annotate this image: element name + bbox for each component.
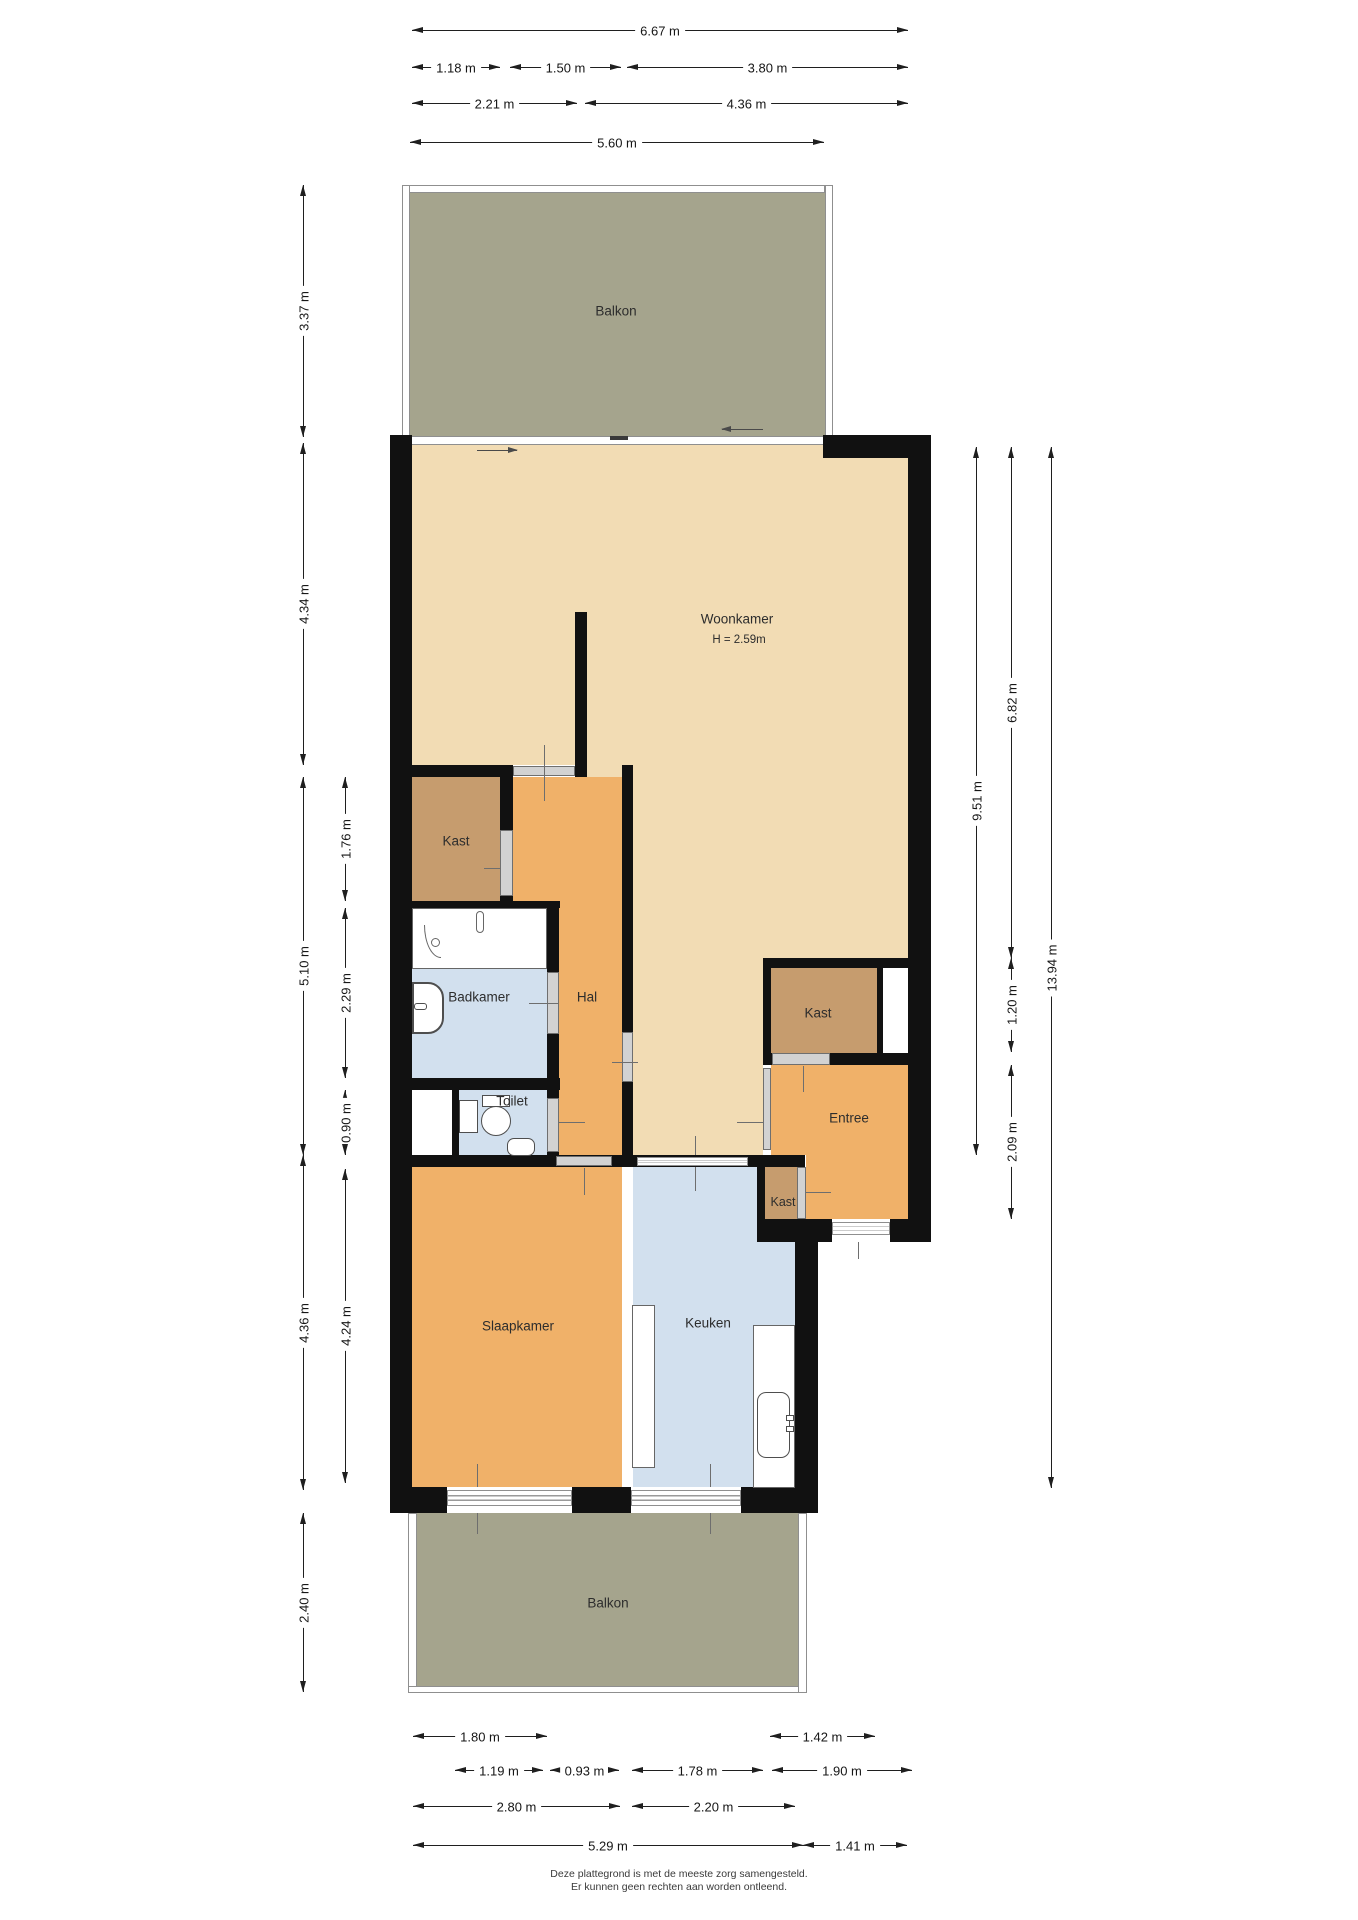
balcony-rail-right (825, 185, 833, 437)
dimension: 2.09 m (1011, 1065, 1012, 1219)
wall-bad-bottom (410, 1078, 560, 1090)
door-swing-tick (544, 745, 545, 801)
dimension: 4.34 m (303, 443, 304, 765)
room-woonkamer-right (633, 765, 908, 958)
balcony2-rail-left (408, 1513, 417, 1693)
dimension-label: 1.78 m (673, 1764, 723, 1779)
dimension: 1.76 m (345, 777, 346, 901)
dimension: 4.36 m (585, 103, 908, 104)
dimension-label: 2.09 m (1005, 1117, 1020, 1167)
dimension-label: 2.20 m (689, 1800, 739, 1815)
dimension-label: 1.42 m (798, 1730, 848, 1745)
wall-kast1-bottom (410, 901, 560, 908)
dimension: 5.29 m (413, 1845, 803, 1846)
bath-faucet (476, 911, 484, 933)
dimension-label: 4.24 m (339, 1301, 354, 1351)
label-keuken: Keuken (685, 1316, 731, 1331)
dimension: 4.36 m (303, 1155, 304, 1490)
door-swing-tick (803, 1066, 804, 1092)
slide-direction-arrow-right (477, 450, 517, 451)
label-woonkamer-height: H = 2.59m (712, 634, 765, 646)
wall-exterior-right (908, 435, 931, 1242)
dimension: 1.80 m (413, 1736, 547, 1737)
dimension-label: 1.19 m (474, 1764, 524, 1779)
dimension-label: 1.80 m (455, 1730, 505, 1745)
balcony-rail-top (402, 185, 825, 193)
door-swing-tick (529, 1003, 559, 1004)
wall-exterior-left (390, 435, 412, 1513)
dimension: 1.20 m (1011, 958, 1012, 1052)
window-center-tick (695, 1167, 696, 1191)
dimension-label: 1.50 m (541, 61, 591, 76)
door-slaapkamer (556, 1156, 612, 1166)
dimension: 6.82 m (1011, 447, 1012, 958)
dimension: 1.90 m (772, 1770, 912, 1771)
wall-entree-bottom-a (757, 1219, 832, 1242)
kitchen-counter-left (632, 1305, 655, 1468)
door-swing-tick (484, 868, 501, 869)
door-swing-tick (612, 1062, 638, 1063)
dimension: 4.24 m (345, 1169, 346, 1483)
door-swing-tick (806, 1192, 831, 1193)
dimension-label: 1.76 m (339, 814, 354, 864)
window-keuken (631, 1490, 741, 1506)
disclaimer: Deze plattegrond is met de meeste zorg s… (0, 1868, 1358, 1894)
dimension: 2.21 m (412, 103, 577, 104)
window-center-tick (695, 1136, 696, 1155)
front-door-sill (832, 1222, 890, 1235)
wall-kast2-left (763, 958, 771, 1065)
wall-bottom-b (572, 1487, 631, 1513)
dimension-label: 6.82 m (1005, 678, 1020, 728)
dimension: 3.80 m (627, 67, 908, 68)
wall-bottom-a (390, 1487, 447, 1513)
dimension-label: 2.40 m (297, 1578, 312, 1628)
room-woonkamer-passage (633, 958, 763, 1155)
balcony-rail-left (402, 185, 410, 437)
dimension-label: 2.29 m (339, 968, 354, 1018)
dimension: 5.60 m (410, 142, 824, 143)
kitchen-faucet (786, 1415, 794, 1421)
room-woonkamer (412, 443, 908, 765)
door-hal-passage (622, 1032, 633, 1082)
wall-entree-bottom-b (890, 1219, 931, 1242)
washbasin-tap (414, 1003, 427, 1010)
label-entree: Entree (829, 1111, 869, 1126)
dimension: 3.37 m (303, 185, 304, 437)
toilet-fountain (507, 1138, 535, 1156)
wall-toilet-niche (452, 1090, 459, 1155)
dimension: 0.93 m (550, 1770, 619, 1771)
door-passage-entree (763, 1068, 771, 1150)
wall-niche-left (877, 968, 883, 1053)
window-slaapkamer (447, 1490, 572, 1506)
door-kast-left (500, 830, 513, 896)
label-kast-left: Kast (442, 834, 469, 849)
dimension-label: 6.67 m (635, 24, 685, 39)
balcony2-rail-bottom (408, 1686, 807, 1693)
dimension: 6.67 m (412, 30, 908, 31)
slide-direction-arrow-left (722, 429, 763, 430)
dimension: 1.41 m (803, 1845, 907, 1846)
dimension: 0.90 m (345, 1090, 346, 1155)
dimension: 9.51 m (976, 447, 977, 1155)
kitchen-faucet-knob (786, 1426, 794, 1432)
dimension: 2.40 m (303, 1513, 304, 1692)
dimension: 1.78 m (632, 1770, 763, 1771)
wall-kast3-left (757, 1155, 765, 1222)
toilet-hand-basin (459, 1100, 478, 1133)
wall-hal-right (622, 765, 633, 1167)
dimension: 2.80 m (413, 1806, 620, 1807)
label-balkon-top: Balkon (595, 304, 636, 319)
dimension-label: 0.93 m (560, 1764, 610, 1779)
door-swing-tick (858, 1242, 859, 1259)
dimension-label: 2.21 m (470, 97, 520, 112)
room-entree-lower (806, 1155, 908, 1219)
wall-keuken-right (795, 1242, 818, 1513)
disclaimer-line-1: Deze plattegrond is met de meeste zorg s… (0, 1868, 1358, 1881)
dimension: 2.20 m (632, 1806, 795, 1807)
wall-stub-woonkamer (575, 612, 587, 777)
door-kast-entree (797, 1167, 806, 1219)
dimension-label: 5.10 m (297, 941, 312, 991)
dimension-label: 5.29 m (583, 1839, 633, 1854)
label-kast-right: Kast (804, 1006, 831, 1021)
dimension-label: 1.41 m (830, 1839, 880, 1854)
dimension-label: 2.80 m (492, 1800, 542, 1815)
dimension: 5.10 m (303, 777, 304, 1155)
kitchen-sink (757, 1392, 790, 1458)
dimension-label: 1.90 m (817, 1764, 867, 1779)
window-center-tick (710, 1464, 711, 1487)
label-slaapkamer: Slaapkamer (482, 1319, 554, 1334)
dimension-label: 3.37 m (297, 286, 312, 336)
wall-kast-hal-top (410, 765, 513, 777)
window-center-tick (710, 1513, 711, 1534)
bathtub-drain (431, 938, 440, 947)
dimension-label: 1.20 m (1005, 980, 1020, 1030)
dimension: 1.42 m (770, 1736, 875, 1737)
label-woonkamer: Woonkamer (701, 612, 774, 627)
dimension-label: 13.94 m (1045, 939, 1060, 996)
door-swing-tick (559, 1122, 585, 1123)
window-center-tick (477, 1464, 478, 1487)
toilet-niche (412, 1090, 452, 1155)
dimension-label: 4.34 m (297, 579, 312, 629)
dimension-label: 3.80 m (743, 61, 793, 76)
label-kast-entree: Kast (770, 1195, 795, 1209)
room-hal-opening (587, 765, 622, 777)
dimension: 1.18 m (412, 67, 500, 68)
label-badkamer: Badkamer (448, 990, 510, 1005)
door-kast-right (772, 1053, 830, 1065)
dimension-label: 4.36 m (297, 1298, 312, 1348)
room-kast-entree (765, 1167, 797, 1219)
shaft-niche (883, 968, 908, 1053)
sliding-door-jamb (610, 436, 628, 440)
label-balkon-bottom: Balkon (587, 1596, 628, 1611)
interior-window-keuken (637, 1157, 748, 1166)
dimension: 1.19 m (455, 1770, 543, 1771)
dimension-label: 5.60 m (592, 136, 642, 151)
label-hal: Hal (577, 990, 597, 1005)
toilet-bowl (481, 1106, 511, 1136)
floor-plan: Balkon Woonkamer H = 2.59m Kast Hal Badk… (0, 0, 1358, 1920)
label-toilet: Toilet (496, 1094, 528, 1109)
dimension-label: 9.51 m (970, 776, 985, 826)
dimension-label: 0.90 m (339, 1098, 354, 1148)
wall-bottom-c (741, 1487, 818, 1513)
dimension-label: 1.18 m (431, 61, 481, 76)
door-swing-tick (737, 1122, 763, 1123)
wall-kast2-top (763, 958, 908, 968)
window-center-tick (477, 1513, 478, 1534)
dimension: 2.29 m (345, 908, 346, 1078)
disclaimer-line-2: Er kunnen geen rechten aan worden ontlee… (0, 1881, 1358, 1894)
dimension: 1.50 m (510, 67, 621, 68)
balcony2-rail-right (798, 1513, 807, 1693)
dimension-label: 4.36 m (722, 97, 772, 112)
door-swing-tick (584, 1168, 585, 1195)
door-toilet (547, 1098, 559, 1152)
dimension: 13.94 m (1051, 447, 1052, 1488)
